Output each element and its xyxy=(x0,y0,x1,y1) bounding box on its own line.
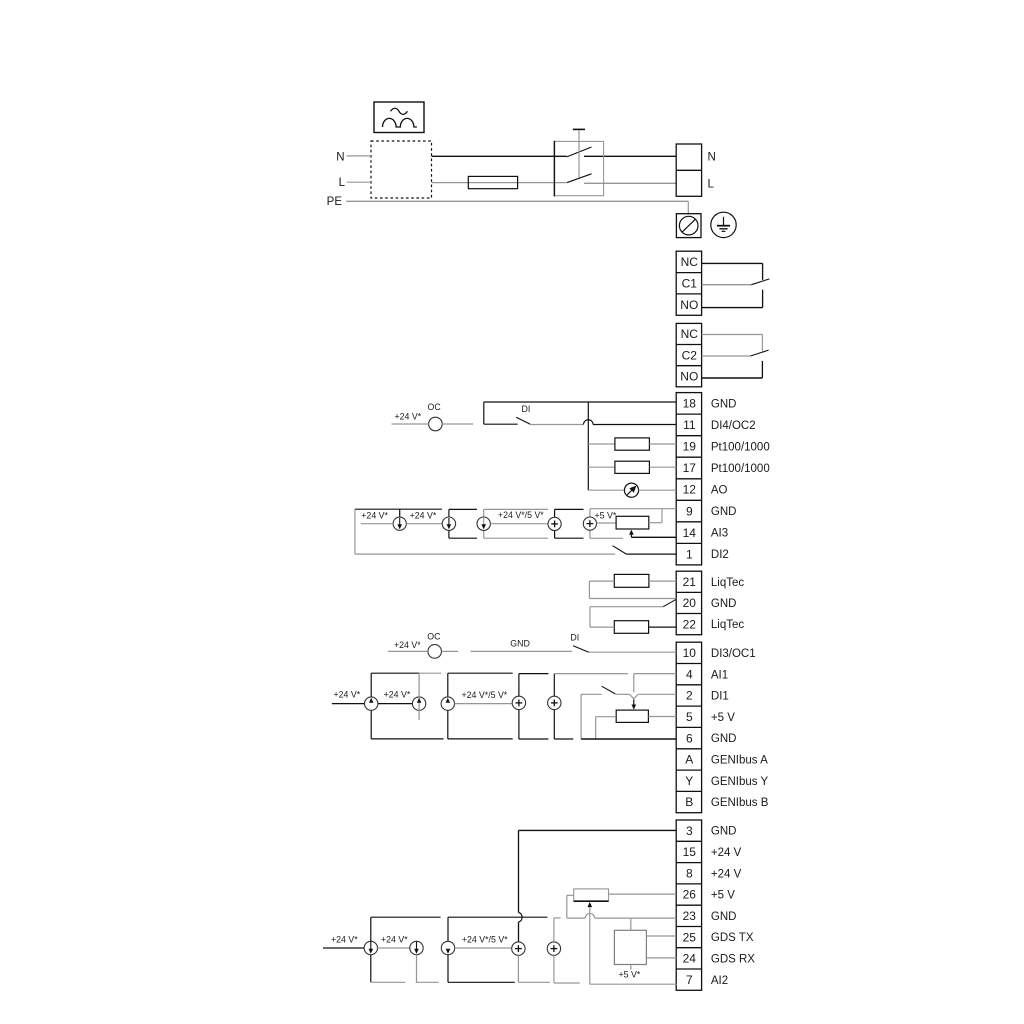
svg-text:+24 V*: +24 V* xyxy=(381,934,408,944)
svg-text:+24 V*: +24 V* xyxy=(334,690,361,700)
svg-text:+5 V*: +5 V* xyxy=(595,510,617,520)
svg-text:B: B xyxy=(685,795,693,809)
svg-text:5: 5 xyxy=(686,710,693,724)
svg-text:C2: C2 xyxy=(682,348,698,362)
svg-text:+24 V*: +24 V* xyxy=(395,412,422,422)
svg-text:A: A xyxy=(685,753,693,767)
svg-text:2: 2 xyxy=(686,689,693,703)
svg-text:7: 7 xyxy=(686,973,693,987)
svg-text:AI2: AI2 xyxy=(711,975,728,987)
svg-text:17: 17 xyxy=(683,461,697,475)
svg-text:23: 23 xyxy=(683,909,697,923)
svg-text:N: N xyxy=(708,152,716,164)
svg-text:NO: NO xyxy=(680,298,698,312)
svg-text:4: 4 xyxy=(686,667,693,681)
svg-text:GENIbus Y: GENIbus Y xyxy=(711,776,769,788)
svg-text:3: 3 xyxy=(686,824,693,838)
svg-text:10: 10 xyxy=(683,646,697,660)
svg-text:C1: C1 xyxy=(682,277,698,291)
svg-text:GND: GND xyxy=(711,399,737,411)
svg-text:GENIbus A: GENIbus A xyxy=(711,755,768,767)
svg-text:NC: NC xyxy=(681,327,699,341)
svg-text:+24 V: +24 V xyxy=(711,847,742,859)
svg-text:GDS RX: GDS RX xyxy=(711,954,755,966)
svg-text:+5 V: +5 V xyxy=(711,712,735,724)
svg-text:Pt100/1000: Pt100/1000 xyxy=(711,442,770,454)
svg-text:PE: PE xyxy=(327,196,343,208)
svg-text:GND: GND xyxy=(711,506,737,518)
svg-text:GDS TX: GDS TX xyxy=(711,932,754,944)
svg-text:15: 15 xyxy=(683,845,697,859)
svg-text:+5 V*: +5 V* xyxy=(619,970,641,980)
svg-text:+24 V*: +24 V* xyxy=(410,510,437,520)
svg-text:8: 8 xyxy=(686,866,693,880)
svg-text:GND: GND xyxy=(711,598,737,610)
svg-text:21: 21 xyxy=(683,575,697,589)
svg-text:22: 22 xyxy=(683,617,697,631)
svg-text:+24 V*: +24 V* xyxy=(361,510,388,520)
svg-text:+24 V*/5 V*: +24 V*/5 V* xyxy=(462,690,508,700)
svg-text:12: 12 xyxy=(683,483,697,497)
svg-text:18: 18 xyxy=(683,397,697,411)
svg-text:9: 9 xyxy=(686,504,693,518)
svg-text:NO: NO xyxy=(680,369,698,383)
svg-text:+24 V*: +24 V* xyxy=(384,690,411,700)
svg-text:25: 25 xyxy=(683,930,697,944)
svg-text:GND: GND xyxy=(711,733,737,745)
svg-text:+24 V: +24 V xyxy=(711,868,742,880)
svg-text:Y: Y xyxy=(685,774,693,788)
svg-text:+5 V: +5 V xyxy=(711,890,735,902)
svg-text:20: 20 xyxy=(683,596,697,610)
svg-text:14: 14 xyxy=(683,526,697,540)
svg-text:DI: DI xyxy=(522,404,531,414)
svg-text:1: 1 xyxy=(686,547,693,561)
svg-text:DI1: DI1 xyxy=(711,691,729,703)
svg-text:OC: OC xyxy=(427,632,441,642)
svg-text:GENIbus B: GENIbus B xyxy=(711,797,769,809)
svg-text:GND: GND xyxy=(510,639,530,649)
svg-text:OC: OC xyxy=(428,402,442,412)
svg-text:26: 26 xyxy=(683,888,697,902)
svg-text:DI3/OC1: DI3/OC1 xyxy=(711,648,756,660)
svg-text:11: 11 xyxy=(683,418,696,432)
svg-text:LiqTec: LiqTec xyxy=(711,619,744,631)
svg-text:6: 6 xyxy=(686,731,693,745)
svg-text:LiqTec: LiqTec xyxy=(711,577,744,589)
svg-text:19: 19 xyxy=(683,440,697,454)
svg-text:AI3: AI3 xyxy=(711,528,728,540)
svg-text:AO: AO xyxy=(711,485,728,497)
svg-text:24: 24 xyxy=(683,952,697,966)
svg-text:NC: NC xyxy=(681,255,699,269)
svg-text:GND: GND xyxy=(711,826,737,838)
svg-text:+24 V*/5 V*: +24 V*/5 V* xyxy=(498,510,544,520)
svg-text:N: N xyxy=(336,151,344,163)
svg-text:DI2: DI2 xyxy=(711,549,729,561)
svg-text:GND: GND xyxy=(711,911,737,923)
svg-text:DI: DI xyxy=(570,632,579,642)
svg-text:+24 V*: +24 V* xyxy=(394,640,421,650)
svg-text:L: L xyxy=(708,179,715,191)
svg-text:L: L xyxy=(339,177,346,189)
svg-text:DI4/OC2: DI4/OC2 xyxy=(711,420,756,432)
svg-text:AI1: AI1 xyxy=(711,669,728,681)
svg-text:Pt100/1000: Pt100/1000 xyxy=(711,463,770,475)
svg-text:+24 V*/5 V*: +24 V*/5 V* xyxy=(462,934,508,944)
svg-text:+24 V*: +24 V* xyxy=(331,934,358,944)
